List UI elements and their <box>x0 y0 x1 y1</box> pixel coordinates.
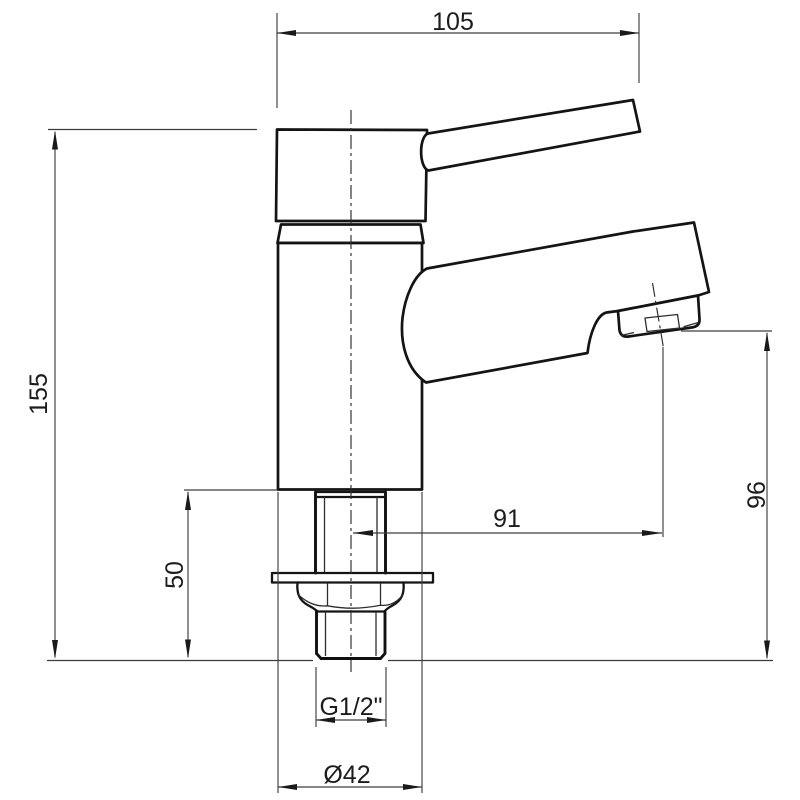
faucet-body <box>278 243 422 490</box>
arrow-91-right <box>642 530 662 536</box>
arrow-96-bottom <box>764 641 770 660</box>
dim-label-total-height: 155 <box>25 373 53 415</box>
arrow-96-top <box>764 332 770 351</box>
arrow-105-right <box>620 30 639 36</box>
arrow-d42-left <box>278 784 297 790</box>
dim-label-spout-reach: 91 <box>493 505 521 533</box>
arrow-d42-right <box>403 784 422 790</box>
faucet-outline <box>276 100 709 490</box>
arrow-50-top <box>185 491 191 510</box>
technical-drawing-page: 105 155 50 91 96 G1/2" Ø42 <box>0 0 800 800</box>
dim-label-thread-size: G1/2" <box>319 693 382 721</box>
arrow-50-bottom <box>185 640 191 659</box>
dim-label-base-diameter: Ø42 <box>323 761 370 789</box>
arrow-91-left <box>353 530 373 536</box>
hexnut-facet-lines <box>328 583 381 606</box>
shank-assembly <box>272 492 433 659</box>
arrow-155-bottom <box>52 640 58 659</box>
flange-plate <box>272 573 433 583</box>
dim-label-spout-outlet-height: 96 <box>743 481 771 509</box>
lever-handle <box>421 100 640 171</box>
dim-label-shank-height: 50 <box>161 561 189 589</box>
faucet-technical-drawing: 105 155 50 91 96 G1/2" Ø42 <box>0 0 800 800</box>
arrow-155-top <box>52 131 58 150</box>
arrow-105-left <box>277 30 296 36</box>
dim-label-handle-width: 105 <box>432 8 474 36</box>
